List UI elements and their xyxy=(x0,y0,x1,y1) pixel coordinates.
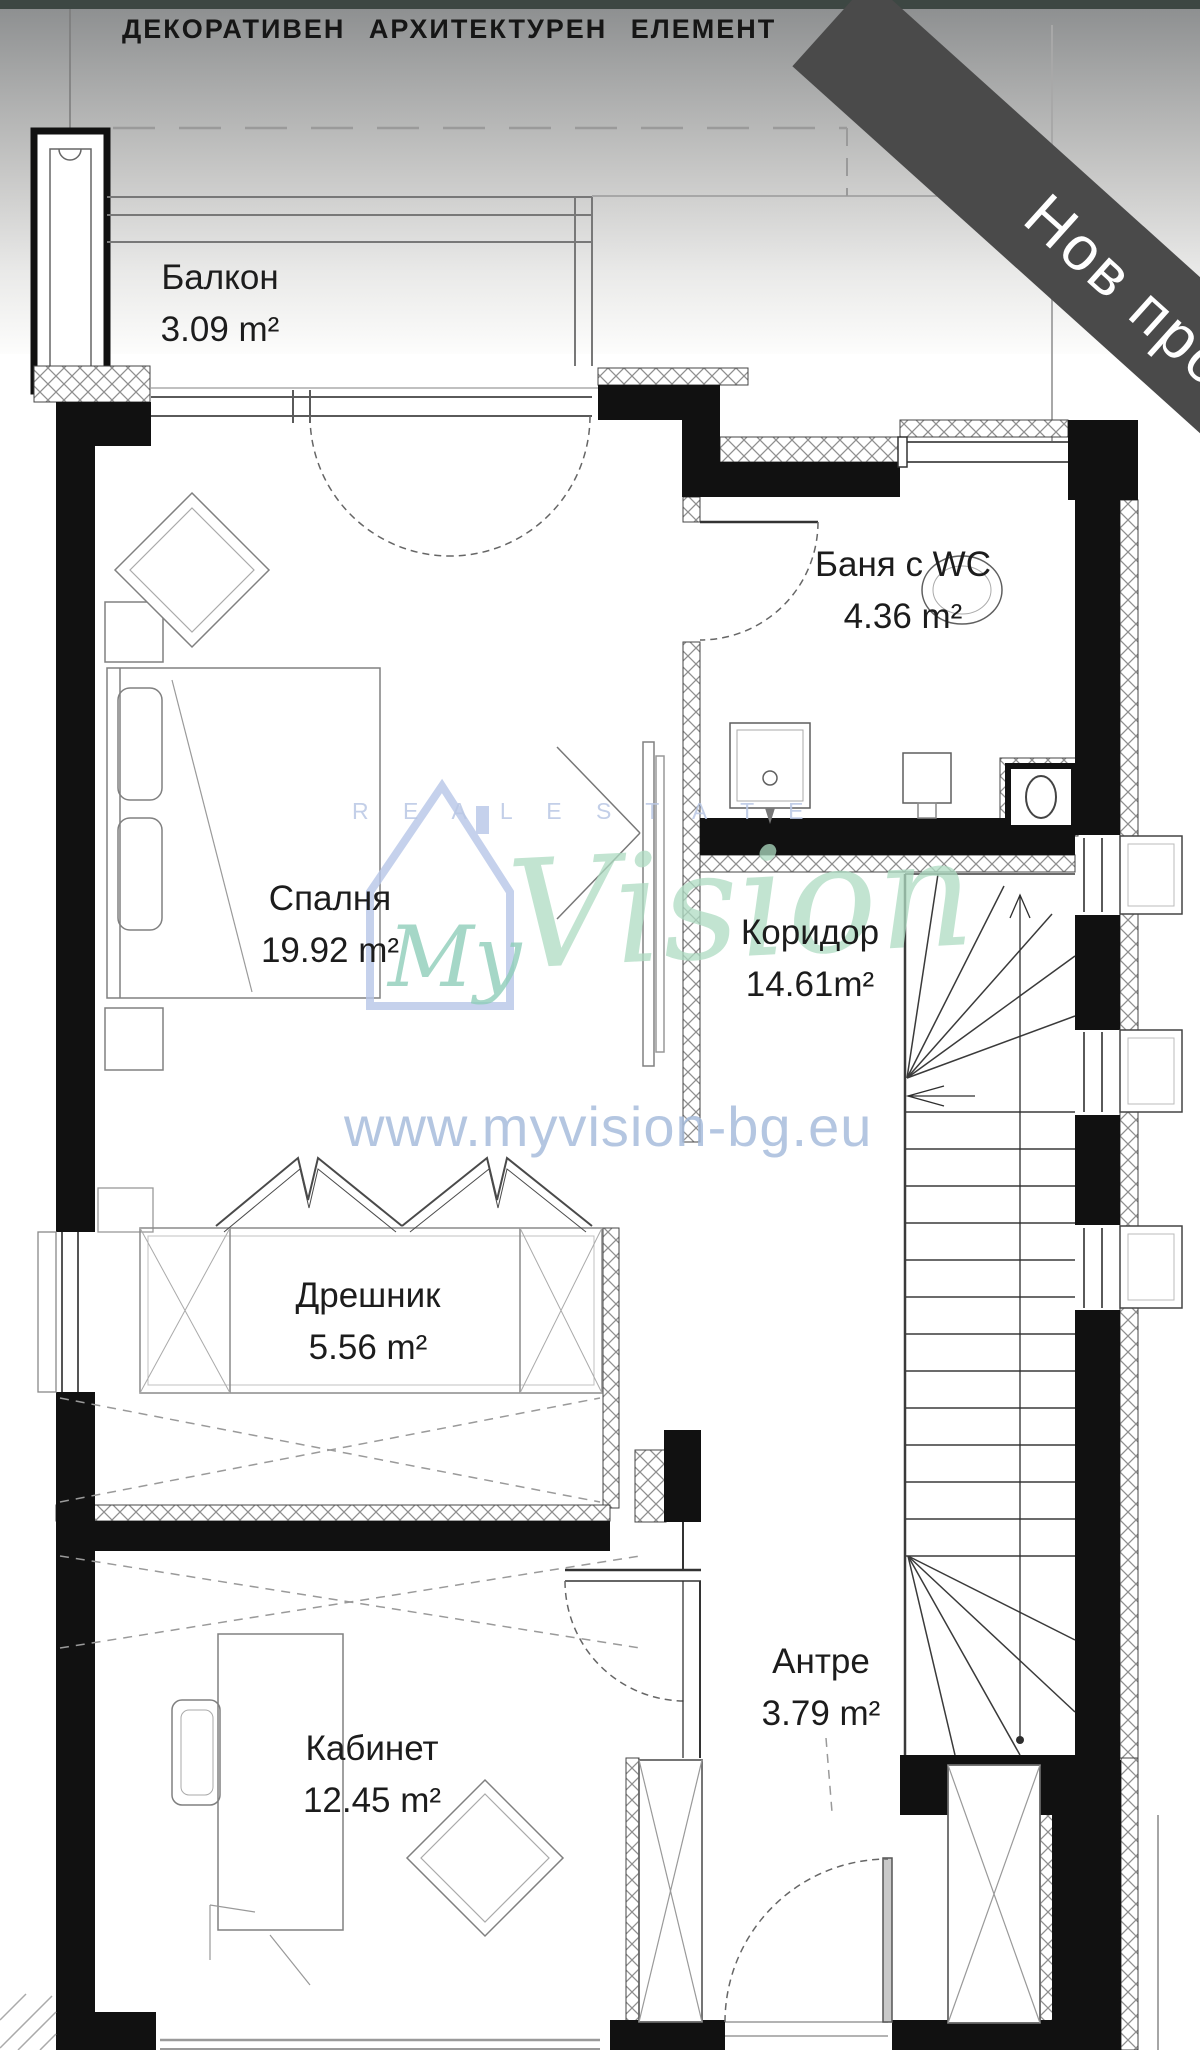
room-label-bedroom: Спалня 19.92 m² xyxy=(261,873,399,977)
room-name: Коридор xyxy=(741,907,879,959)
sloped-ceiling-zones xyxy=(60,1398,832,1812)
room-label-balcony: Балкон 3.09 m² xyxy=(161,252,280,356)
staircase xyxy=(905,874,1075,1755)
room-name: Спалня xyxy=(261,873,399,925)
room-name: Дрешник xyxy=(296,1270,441,1322)
room-area: 12.45 m² xyxy=(303,1775,441,1827)
page-title: ДЕКОРАТИВЕН АРХИТЕКТУРЕН ЕЛЕМЕНТ xyxy=(122,14,762,45)
dressing-window xyxy=(38,1188,153,1392)
room-area: 3.09 m² xyxy=(161,304,280,356)
room-name: Кабинет xyxy=(303,1723,441,1775)
room-label-corridor: Коридор 14.61m² xyxy=(741,907,879,1011)
room-area: 19.92 m² xyxy=(261,925,399,977)
room-label-dressing: Дрешник 5.56 m² xyxy=(296,1270,441,1374)
room-name: Баня с WC xyxy=(815,539,991,591)
terrace-hatch xyxy=(0,1994,56,2050)
floor-plan-page: R E A L E S T A T E My Vision www.myvisi… xyxy=(0,0,1200,2050)
room-name: Балкон xyxy=(161,252,280,304)
room-label-bathroom: Баня с WC 4.36 m² xyxy=(815,539,991,643)
watermark-url: www.myvision-bg.eu xyxy=(344,1094,872,1159)
room-label-office: Кабинет 12.45 m² xyxy=(303,1723,441,1827)
watermark-brand-my: My xyxy=(388,908,521,1006)
room-name: Антре xyxy=(762,1636,881,1688)
room-area: 14.61m² xyxy=(741,959,879,1011)
entry-closets xyxy=(639,1760,1040,2023)
room-area: 4.36 m² xyxy=(815,591,991,643)
room-area: 5.56 m² xyxy=(296,1322,441,1374)
room-label-entry: Антре 3.79 m² xyxy=(762,1636,881,1740)
room-area: 3.79 m² xyxy=(762,1688,881,1740)
